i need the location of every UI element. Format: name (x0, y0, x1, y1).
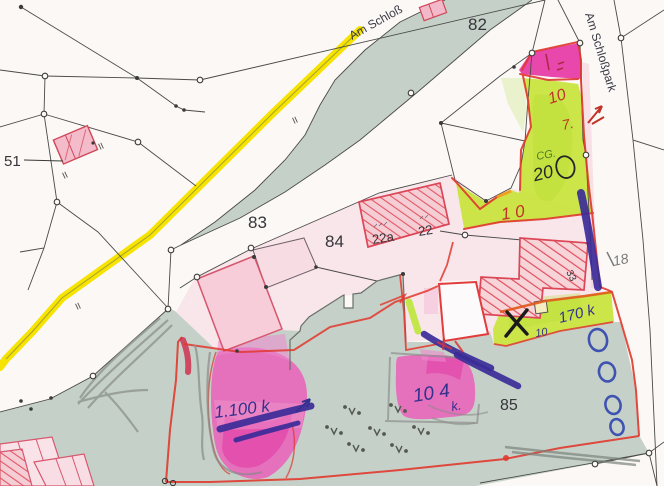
svg-text:51: 51 (4, 153, 21, 170)
svg-text:1 0: 1 0 (500, 201, 527, 224)
svg-text:22: 22 (417, 222, 434, 239)
svg-text:83: 83 (248, 213, 267, 232)
svg-text:84: 84 (325, 232, 344, 251)
svg-text:82: 82 (468, 15, 487, 34)
svg-text:85: 85 (500, 397, 518, 414)
